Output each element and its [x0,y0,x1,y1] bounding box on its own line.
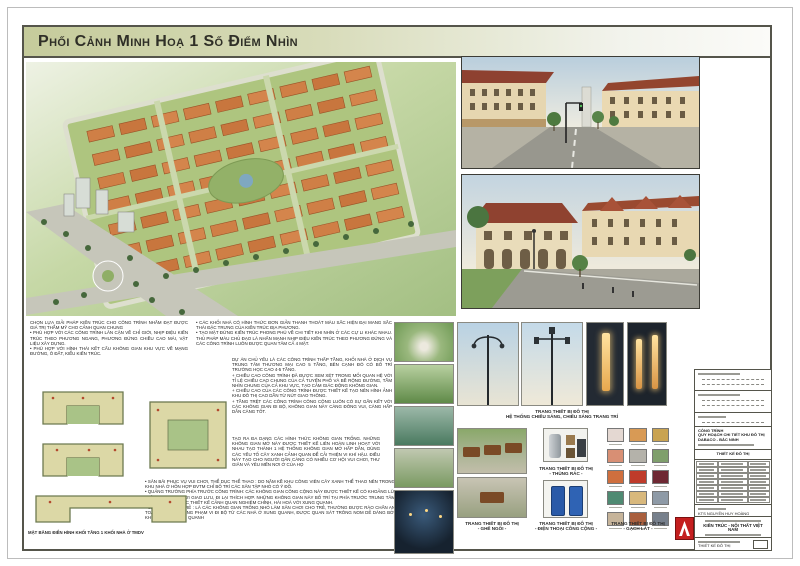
tile-swatch [607,470,624,484]
building-height-text: DỰ ÁN CHỦ YẾU LÀ CÁC CÔNG TRÌNH THẤP TẦN… [232,357,392,414]
tile-swatch [629,449,646,463]
photo-trash-bins [543,428,588,462]
tile-swatch [652,449,669,463]
design-label: THIẾT KẾ ĐÔ THỊ [695,450,771,460]
sheet-number-cell [753,540,768,549]
photo-street-lamp-2 [521,322,583,406]
bins-caption: TRANG THIẾT BỊ ĐÔ THỊ - THÙNG RÁC - [530,466,602,477]
tile-swatch [629,491,646,505]
sheet-label: THIẾT KẾ ĐÔ THỊ [698,544,751,549]
street-perspective-render-2 [461,174,700,309]
street-lamp-icon [458,323,518,405]
tile-swatch [629,470,646,484]
chief-architect-name: KTS NGUYỄN HUY HOÀNG [698,512,768,517]
street-perspective-render-1 [461,56,700,169]
photo-benches [457,428,527,474]
photo-night-palms [394,490,454,554]
approval-section [695,370,771,391]
tile-swatch [652,470,669,484]
glowing-column-icon [602,333,610,391]
signature-table [695,460,771,505]
photo-decorative-light-1 [586,322,624,406]
review-section [695,413,771,428]
square-bin-icon [577,439,586,457]
presentation-board: Phối Cảnh Minh Hoạ 1 Số Điểm Nhìn [0,0,800,566]
company-section: KIẾN TRÚC - NỘI THẤT VIỆT NAM [695,517,771,538]
photo-park-pond [394,406,454,446]
photo-bench-paving [457,477,527,518]
photo-garden-walk [394,448,454,488]
project-name: QUY HOẠCH CHI TIẾT KHU ĐÔ THỊ DABACO - B… [698,433,768,442]
phone-booth-icon [569,486,583,516]
metal-bin-icon [549,434,561,458]
sheet-info-section: THIẾT KẾ ĐÔ THỊ [695,538,771,550]
tile-swatch [652,428,669,442]
floor-plan-diagram-1 [33,382,133,437]
architecture-approach-text: CHỌN LỰA GIẢI PHÁP KIẾN TRÚC CHO CÔNG TR… [30,320,188,356]
investor-section [695,391,771,412]
paving-tile-swatches [607,428,669,529]
header-bar: Phối Cảnh Minh Hoạ 1 Số Điểm Nhìn [22,25,772,58]
photo-park-fountain [394,322,454,362]
aerial-masterplan-render [26,62,456,316]
floor-plan-caption: MẶT BẰNG ĐIỂN HÌNH KHỐI TẦNG 1 KHỐI NHÀ … [28,530,178,535]
bench-caption: TRANG THIẾT BỊ ĐÔ THỊ - GHẾ NGỒI - [450,521,534,532]
page-title: Phối Cảnh Minh Hoạ 1 Số Điểm Nhìn [24,33,298,51]
tiles-caption: TRANG THIẾT BỊ ĐÔ THỊ - GẠCH LÁT - [600,521,676,532]
chief-architect-section: KTS NGUYỄN HUY HOÀNG [695,505,771,517]
aerial-masterplan-illustration [26,62,456,316]
building-form-text: • CÁC KHỐI NHÀ CÓ HÌNH THỨC ĐƠN GIẢN THA… [196,320,392,346]
basket-bin-icon [566,448,575,458]
tile-swatch [629,428,646,442]
floor-plan-diagram-4 [30,490,192,533]
phone-booth-icon [551,486,565,516]
phone-caption: TRANG THIẾT BỊ ĐÔ THỊ - ĐIỆN THOẠI CÔNG … [527,521,605,532]
open-space-text: TẠO RA ĐA DẠNG CÁC HÌNH THỨC KHÔNG GIAN … [232,436,380,467]
project-section: CÔNG TRÌNH QUY HOẠCH CHI TIẾT KHU ĐÔ THỊ… [695,427,771,450]
tile-swatch [607,428,624,442]
tile-swatch [607,449,624,463]
street-lamp-icon [522,323,582,405]
glowing-column-icon [636,339,642,389]
floor-plan-diagram-3 [140,394,236,483]
lighting-caption: TRANG THIẾT BỊ ĐÔ THỊ HỆ THỐNG CHIẾU SÁN… [457,409,667,420]
company-logo-icon [675,517,694,540]
photo-phone-booths [543,480,588,518]
title-block: CÔNG TRÌNH QUY HOẠCH CHI TIẾT KHU ĐÔ THỊ… [694,369,772,551]
tile-swatch [607,491,624,505]
photo-park-lawn [394,364,454,404]
glowing-column-icon [652,335,658,389]
company-name: KIẾN TRÚC - NỘI THẤT VIỆT NAM [698,524,768,533]
photo-street-lamp-1 [457,322,519,406]
tile-swatch [652,491,669,505]
basket-bin-icon [566,435,575,445]
photo-decorative-light-2 [627,322,667,406]
floor-plan-diagram-2 [33,436,133,491]
